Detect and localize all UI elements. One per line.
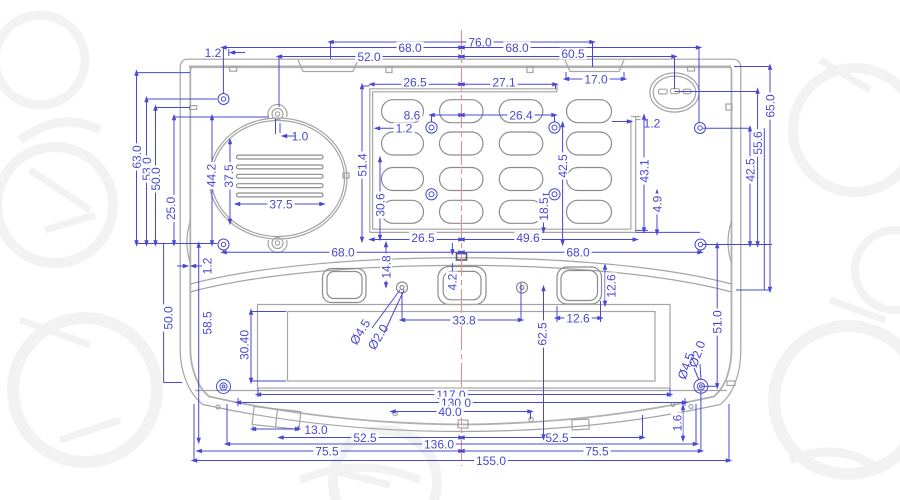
svg-text:43.1: 43.1 <box>637 159 651 183</box>
svg-text:50.0: 50.0 <box>161 306 175 330</box>
svg-text:136.0: 136.0 <box>424 437 454 451</box>
svg-text:12.6: 12.6 <box>604 274 618 298</box>
svg-text:37.5: 37.5 <box>222 164 236 188</box>
svg-text:75.5: 75.5 <box>585 444 609 458</box>
svg-text:26.4: 26.4 <box>509 108 533 122</box>
svg-text:1.2: 1.2 <box>644 116 661 130</box>
svg-text:14.8: 14.8 <box>379 255 393 279</box>
svg-text:37.5: 37.5 <box>269 197 293 211</box>
svg-text:52.5: 52.5 <box>353 431 377 445</box>
svg-text:51.4: 51.4 <box>355 153 369 177</box>
svg-text:68.0: 68.0 <box>398 41 422 55</box>
svg-text:30.6: 30.6 <box>373 193 387 217</box>
svg-text:25.0: 25.0 <box>164 196 178 220</box>
svg-text:1.0: 1.0 <box>292 129 309 143</box>
svg-text:12.6: 12.6 <box>566 311 590 325</box>
svg-text:51.0: 51.0 <box>711 310 725 334</box>
svg-text:42.5: 42.5 <box>743 158 757 182</box>
svg-text:50.0: 50.0 <box>149 167 163 191</box>
svg-text:58.5: 58.5 <box>200 311 214 335</box>
svg-text:4.2: 4.2 <box>445 273 459 290</box>
svg-text:17.0: 17.0 <box>584 72 608 86</box>
svg-text:18.5: 18.5 <box>537 197 551 221</box>
svg-text:62.5: 62.5 <box>535 322 549 346</box>
svg-text:26.5: 26.5 <box>403 76 427 90</box>
svg-text:40.0: 40.0 <box>438 405 462 419</box>
svg-text:68.0: 68.0 <box>505 41 529 55</box>
svg-text:26.5: 26.5 <box>411 231 435 245</box>
svg-text:52.5: 52.5 <box>545 431 569 445</box>
svg-text:8.6: 8.6 <box>404 108 421 122</box>
svg-text:30.40: 30.40 <box>237 330 251 360</box>
svg-text:65.0: 65.0 <box>763 94 777 118</box>
svg-text:33.8: 33.8 <box>452 313 476 327</box>
svg-text:68.0: 68.0 <box>331 246 355 260</box>
svg-text:13.0: 13.0 <box>304 423 328 437</box>
svg-text:49.6: 49.6 <box>516 231 540 245</box>
svg-text:4.9: 4.9 <box>650 195 664 212</box>
svg-text:1.2: 1.2 <box>200 257 214 274</box>
svg-text:1.6: 1.6 <box>670 414 684 431</box>
svg-text:27.1: 27.1 <box>492 75 516 89</box>
svg-text:75.5: 75.5 <box>315 444 339 458</box>
svg-text:155.0: 155.0 <box>476 454 506 468</box>
svg-text:42.5: 42.5 <box>556 154 570 178</box>
svg-text:1.2: 1.2 <box>396 122 413 136</box>
svg-text:44.2: 44.2 <box>204 163 218 187</box>
svg-text:55.6: 55.6 <box>751 131 765 155</box>
svg-text:1.2: 1.2 <box>205 46 222 60</box>
svg-text:52.0: 52.0 <box>357 50 381 64</box>
svg-text:68.0: 68.0 <box>566 246 590 260</box>
svg-text:60.5: 60.5 <box>561 47 585 61</box>
